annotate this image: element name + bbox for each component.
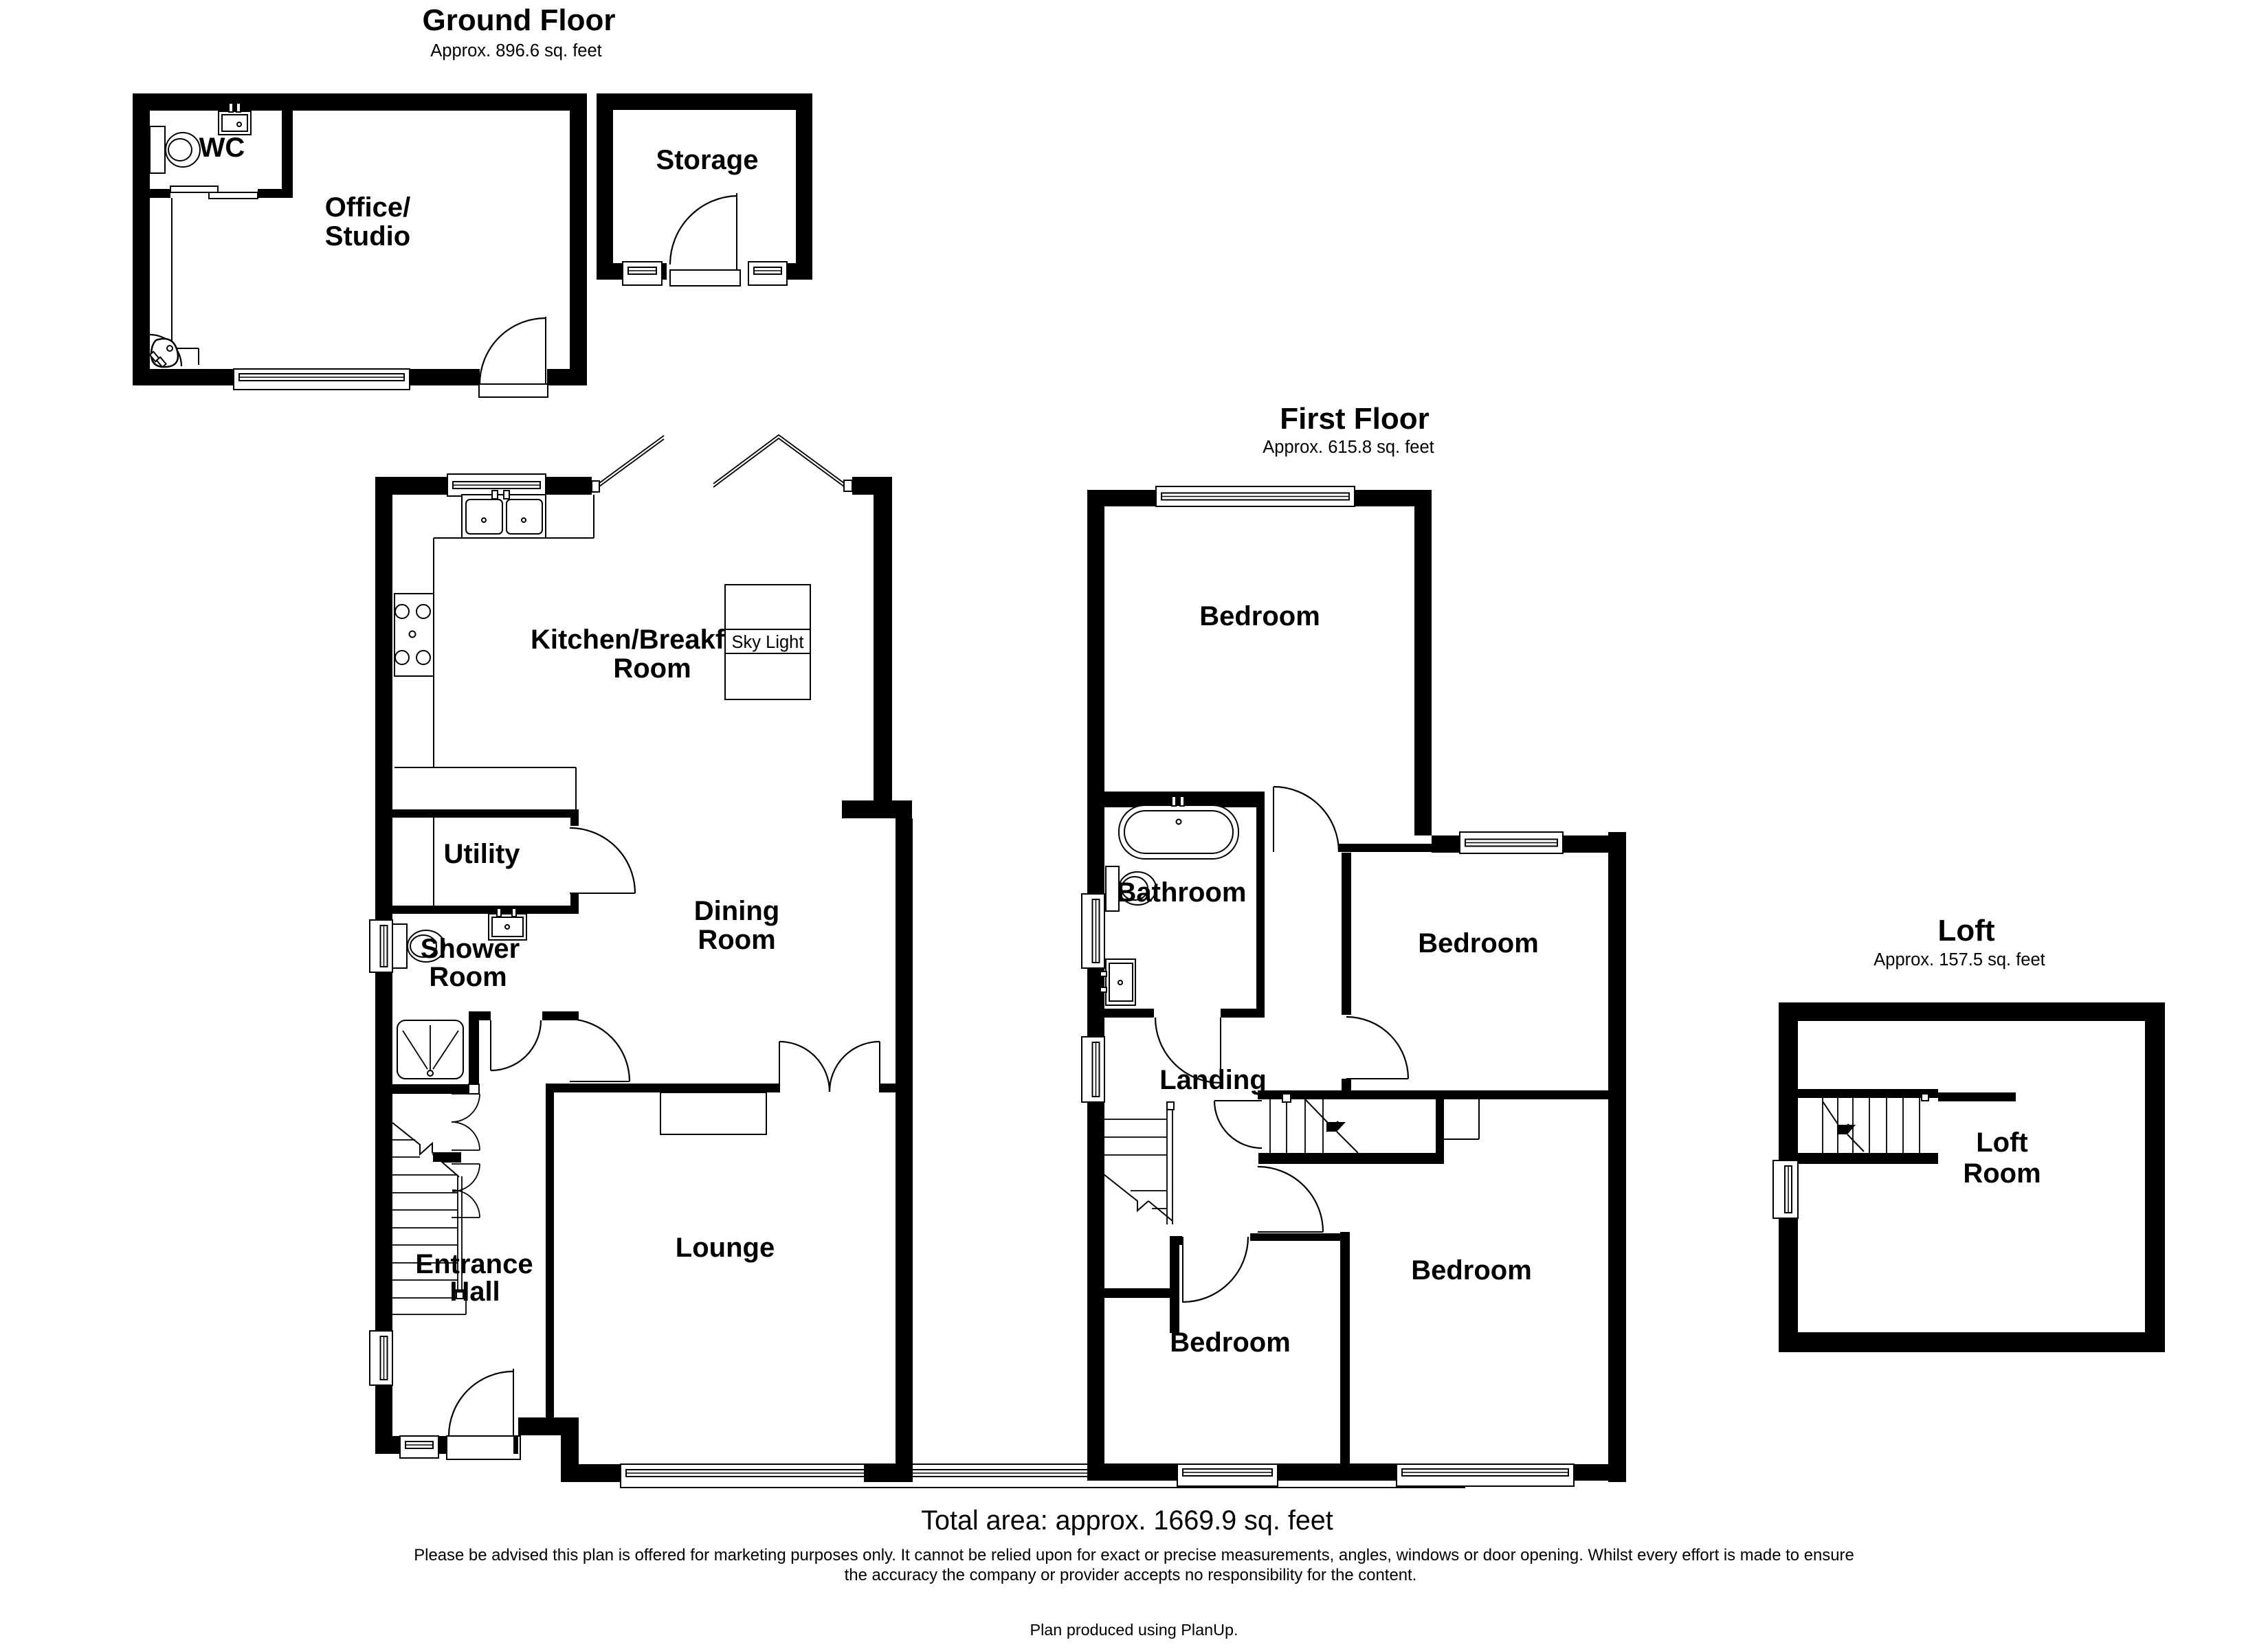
svg-text:WC: WC bbox=[199, 133, 245, 163]
svg-text:Plan produced using PlanUp.: Plan produced using PlanUp. bbox=[1030, 1621, 1238, 1639]
svg-text:Approx. 896.6 sq. feet: Approx. 896.6 sq. feet bbox=[430, 41, 602, 60]
svg-text:Room: Room bbox=[698, 925, 775, 955]
svg-text:Room: Room bbox=[1963, 1158, 2041, 1189]
svg-text:Bedroom: Bedroom bbox=[1411, 1255, 1532, 1286]
svg-text:the accuracy the company or pr: the accuracy the company or provider acc… bbox=[845, 1566, 1417, 1584]
svg-text:Storage: Storage bbox=[656, 145, 759, 175]
svg-text:First Floor: First Floor bbox=[1280, 402, 1430, 436]
svg-text:Total area: approx. 1669.9 sq.: Total area: approx. 1669.9 sq. feet bbox=[921, 1505, 1333, 1536]
svg-text:Bedroom: Bedroom bbox=[1170, 1327, 1291, 1358]
svg-text:Ground Floor: Ground Floor bbox=[422, 3, 615, 37]
svg-text:Room: Room bbox=[429, 962, 507, 992]
svg-text:Office/: Office/ bbox=[325, 192, 410, 223]
svg-text:Room: Room bbox=[613, 653, 691, 684]
svg-text:Utility: Utility bbox=[443, 839, 520, 869]
svg-text:Dining: Dining bbox=[694, 896, 779, 926]
svg-text:Entrance: Entrance bbox=[415, 1249, 533, 1279]
svg-text:Loft: Loft bbox=[1976, 1128, 2028, 1158]
svg-text:Studio: Studio bbox=[325, 221, 410, 251]
svg-text:Bedroom: Bedroom bbox=[1418, 928, 1539, 958]
svg-text:Shower: Shower bbox=[421, 934, 520, 964]
svg-text:Approx. 157.5 sq. feet: Approx. 157.5 sq. feet bbox=[1874, 950, 2045, 969]
svg-text:Bathroom: Bathroom bbox=[1117, 877, 1247, 908]
svg-text:Please be advised this plan is: Please be advised this plan is offered f… bbox=[414, 1546, 1854, 1564]
svg-text:Sky Light: Sky Light bbox=[732, 633, 804, 652]
svg-text:Lounge: Lounge bbox=[676, 1233, 775, 1263]
svg-text:Approx. 615.8 sq. feet: Approx. 615.8 sq. feet bbox=[1263, 438, 1434, 457]
svg-text:Loft: Loft bbox=[1937, 914, 1994, 947]
svg-text:Landing: Landing bbox=[1159, 1065, 1267, 1095]
svg-text:Bedroom: Bedroom bbox=[1199, 601, 1320, 631]
svg-text:Hall: Hall bbox=[449, 1277, 500, 1307]
